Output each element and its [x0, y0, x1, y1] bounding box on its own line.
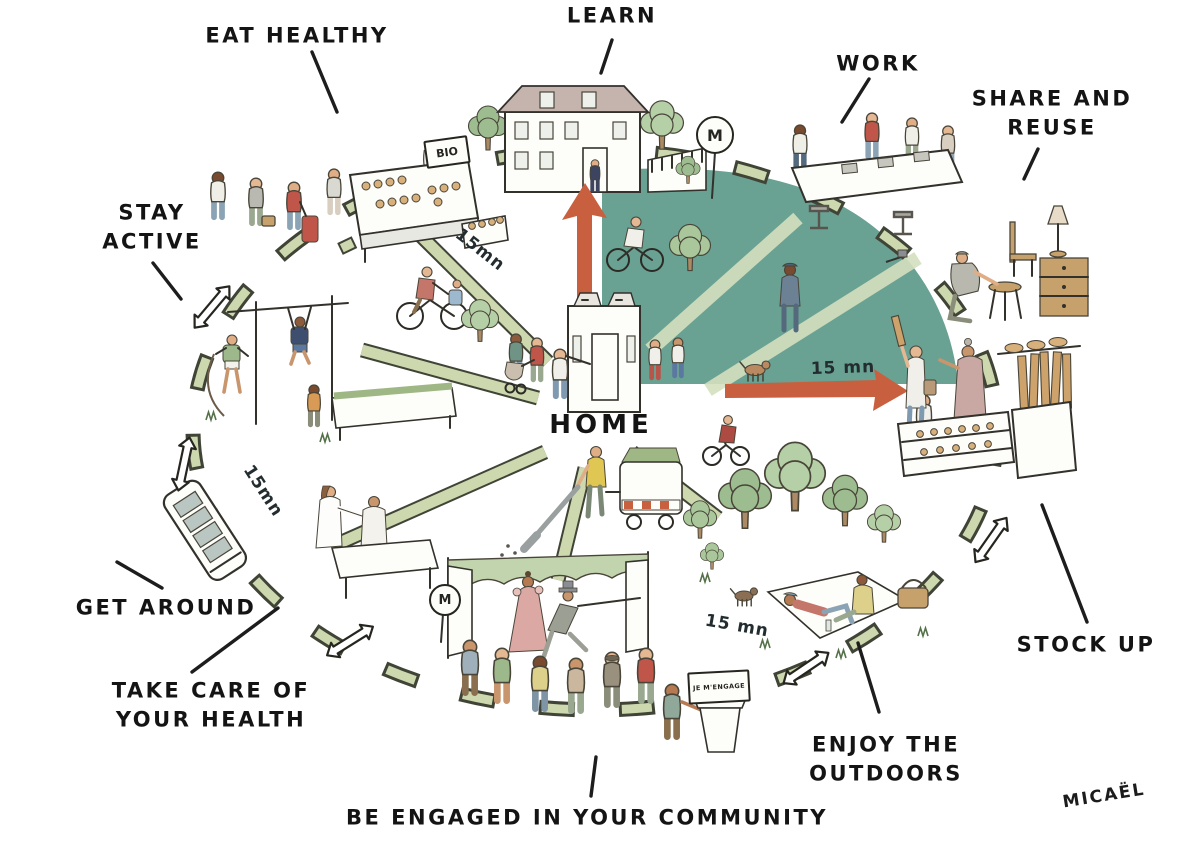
time-marker-east: 15 mn — [810, 357, 875, 379]
label-outdoors: ENJOY THE OUTDOORS — [791, 731, 981, 790]
label-community: BE ENGAGED IN YOUR COMMUNITY — [346, 803, 828, 832]
metro-sign-icon: M — [696, 116, 734, 154]
garden-family-scene — [308, 267, 544, 442]
label-share-and-reuse: SHARE AND REUSE — [962, 85, 1142, 144]
baguettes — [1018, 352, 1072, 408]
label-take-care: TAKE CARE OF YOUR HEALTH — [86, 677, 336, 736]
theater-scene — [441, 552, 654, 711]
pledge-sign: JE M'ENGAGE — [687, 669, 751, 704]
label-get-around: GET AROUND — [76, 593, 257, 622]
fifteen-minute-city-illustration: EAT HEALTHY LEARN WORK SHARE AND REUSE S… — [0, 0, 1188, 853]
label-eat-healthy: EAT HEALTHY — [205, 21, 388, 50]
share-reuse-scene — [950, 206, 1088, 321]
small-cyclist — [703, 416, 749, 465]
label-stay-active: STAY ACTIVE — [97, 199, 207, 258]
label-home: HOME — [549, 407, 653, 443]
bus-scene — [160, 477, 250, 584]
label-work: WORK — [836, 49, 919, 78]
metro-sign-icon: M — [429, 584, 461, 616]
label-learn: LEARN — [567, 1, 657, 30]
label-stock-up: STOCK UP — [1017, 630, 1156, 659]
school-scene — [469, 86, 716, 198]
